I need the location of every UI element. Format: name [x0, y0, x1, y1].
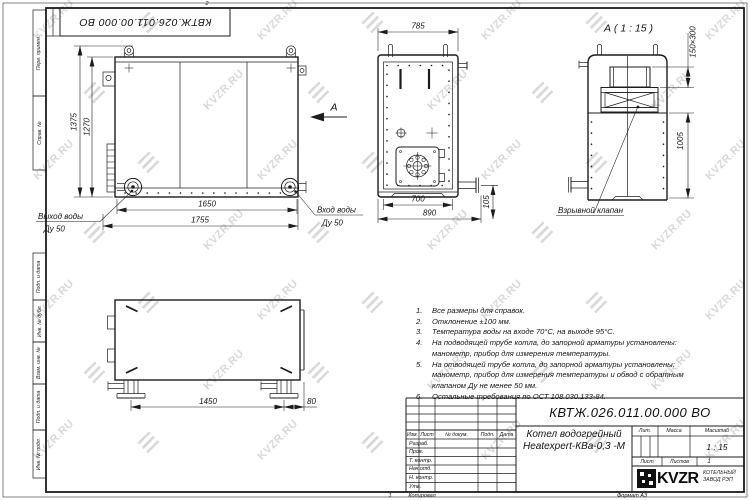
- titleblock-product-name: Котел водогрейный Heatexpert-КВа-0,3 -М: [516, 427, 632, 455]
- mass-label: Масса: [658, 426, 690, 436]
- col-podp: Подп.: [478, 430, 497, 439]
- margin-box-vzam-inv: Взам. инв. №: [33, 342, 46, 384]
- margin-label: Подп. и дата: [37, 391, 43, 423]
- row-tkontr: Т. контр.: [407, 457, 452, 466]
- scale-label: Масштаб: [690, 426, 744, 436]
- col-data: Дата: [497, 430, 516, 439]
- note-row: 1.Все размеры для справок.: [403, 306, 723, 317]
- row-nkontr: Н. контр.: [407, 474, 452, 483]
- zone-marker-top: 2: [202, 0, 212, 7]
- margin-box-perv-primen: Перв. примен.: [33, 10, 46, 96]
- logo-sub-line2: ЗАВОД РЭП: [703, 477, 745, 484]
- format-label: Формат А3: [610, 493, 654, 500]
- margin-box-inv-podl: Инв. № подл.: [33, 430, 46, 478]
- note-row: клапаном Ду не менее 50 мм.: [403, 381, 723, 392]
- logo-sub-line1: КОТЕЛЬНЫЙ: [703, 470, 745, 477]
- note-row: 6.Остальные требования по ОСТ 108.030.13…: [403, 392, 723, 403]
- col-list: Лист: [419, 430, 435, 439]
- margin-label: Инв. № подл.: [37, 438, 43, 470]
- note-row: манометр, прибор для измерения температу…: [403, 349, 723, 360]
- sheets-label: Листов: [662, 457, 697, 466]
- technical-notes: 1.Все размеры для справок. 2.Отклонение …: [403, 306, 723, 402]
- note-row: 2.Отклонение ±100 мм.: [403, 317, 723, 328]
- margin-label: Инв. № дубл.: [37, 305, 43, 337]
- margin-label: Взам. инв. №: [37, 347, 43, 379]
- col-izm: Изм.: [406, 430, 419, 439]
- row-razrab: Разраб.: [407, 439, 452, 448]
- product-name-line1: Котел водогрейный: [526, 429, 621, 441]
- lit-label: Лит.: [632, 426, 658, 436]
- margin-box-sprav: Справ. №: [33, 96, 46, 170]
- margin-label: Справ. №: [37, 121, 43, 145]
- note-row: 5.На отводящей трубе котла, до запорной …: [403, 360, 723, 371]
- top-stamp: КВТЖ.026.011.00.000 ВО: [60, 8, 230, 36]
- kvzr-qr-logo: [637, 469, 656, 488]
- margin-box-podp-data-1: Подп. и дата: [33, 253, 46, 300]
- note-row: манометр, прибор для измерения температу…: [403, 370, 723, 381]
- row-utv: Утв.: [407, 483, 452, 492]
- sheets-value: 1: [697, 457, 721, 466]
- margin-label: Подп. и дата: [37, 260, 43, 292]
- kvzr-logo-text: KVZR: [657, 468, 703, 490]
- note-row: 4.На подводящей трубе котла, до запорной…: [403, 338, 723, 349]
- margin-box-podp-data-2: Подп. и дата: [33, 384, 46, 430]
- col-docnum: № докум.: [435, 430, 478, 439]
- copied-label: Копировал: [400, 493, 444, 500]
- top-stamp-number: КВТЖ.026.011.00.000 ВО: [79, 16, 212, 28]
- row-nachotd: Нач.отд.: [407, 465, 452, 474]
- scale-value: 1 : 15: [690, 436, 744, 457]
- sheet-label: Лист: [632, 457, 662, 466]
- kvzr-logo-subtitle: КОТЕЛЬНЫЙ ЗАВОД РЭП: [703, 470, 745, 483]
- note-row: 3.Температура воды на входе 70°С, на вых…: [403, 327, 723, 338]
- margin-label: Перв. примен.: [37, 36, 43, 70]
- product-name-line2: Heatexpert-КВа-0,3 -М: [523, 441, 625, 453]
- drawing-sheet: KVZR.RUKVZR.RUKVZR.RUKVZR.RUKVZR.RUKVZR.…: [0, 0, 750, 500]
- margin-box-inv-dubl: Инв. № дубл.: [33, 300, 46, 342]
- zone-marker-bottom: 1: [384, 493, 396, 500]
- row-prov: Пров.: [407, 448, 452, 457]
- titleblock-doc-number: КВТЖ.026.011.00.000 ВО: [518, 399, 742, 425]
